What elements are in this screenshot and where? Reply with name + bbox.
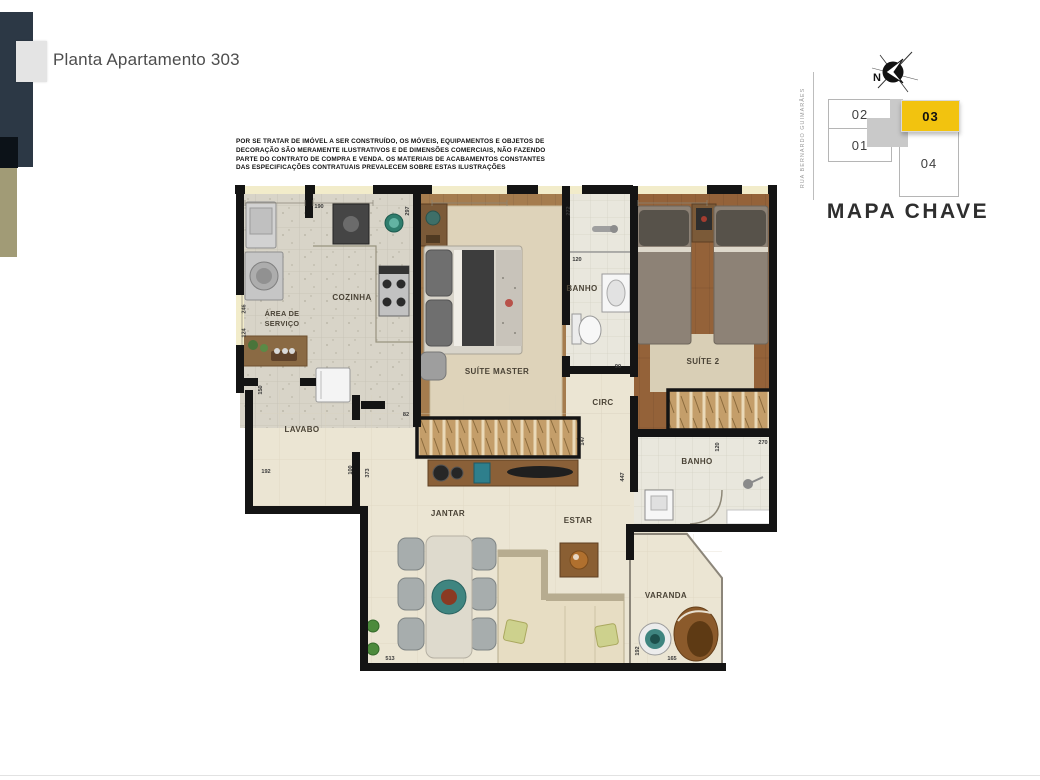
room-label-estar: ESTAR <box>564 516 593 525</box>
disclaimer-line: POR SE TRATAR DE IMÓVEL A SER CONSTRUÍDO… <box>236 138 548 147</box>
dim-272: 272 <box>566 206 572 215</box>
dim-124: 124 <box>242 327 248 337</box>
deco-bar-olive <box>0 168 17 257</box>
blank-label-box <box>727 510 771 524</box>
key-map: RUA BERNARDO GUIMARÃES N 02 01 03 04 MAP… <box>795 40 1040 235</box>
room-label-area-servico: ÁREA DE <box>265 309 300 318</box>
room-label-banho1: BANHO <box>566 284 597 293</box>
title-bullet-square <box>16 41 47 82</box>
dim-82: 82 <box>403 412 409 418</box>
room-label-lavabo: LAVABO <box>285 425 320 434</box>
suite2-closet <box>668 390 771 430</box>
compass-icon: N <box>870 48 920 103</box>
keymap-unit-03-highlighted: 03 <box>901 100 960 132</box>
dim-373: 373 <box>365 468 371 477</box>
double-bed <box>424 246 522 354</box>
dim-100: 100 <box>348 465 354 474</box>
dim-90: 90 <box>615 364 621 370</box>
room-label-circ: CIRC <box>592 398 613 407</box>
room-label-suite-master: SUÍTE MASTER <box>465 367 529 376</box>
sideboard <box>428 460 578 486</box>
dim-513: 513 <box>385 656 394 662</box>
armchair <box>420 352 446 380</box>
room-label-cozinha: COZINHA <box>332 293 371 302</box>
bath1-toilet <box>579 316 601 344</box>
floor-plan: ÁREA DE SERVIÇO COZINHA SUÍTE MASTER BAN… <box>233 183 793 683</box>
single-bed-right <box>714 206 768 344</box>
page-title: Planta Apartamento 303 <box>53 50 240 70</box>
dim-192-varanda: 192 <box>635 646 641 655</box>
keymap-title: MAPA CHAVE <box>823 200 993 224</box>
dim-297: 297 <box>405 206 411 215</box>
dim-120-banho2: 120 <box>715 442 721 451</box>
room-label-varanda: VARANDA <box>645 591 687 600</box>
dim-270: 270 <box>758 440 767 446</box>
room-label-suite2: SUÍTE 2 <box>686 357 719 366</box>
room-label-banho2: BANHO <box>681 457 712 466</box>
room-label-area-servico-2: SERVIÇO <box>265 319 300 328</box>
dim-447: 447 <box>620 472 626 481</box>
disclaimer-text: POR SE TRATAR DE IMÓVEL A SER CONSTRUÍDO… <box>236 138 548 173</box>
dim-246: 246 <box>242 304 248 313</box>
deco-bar-black <box>0 137 18 168</box>
dim-192-lavabo: 192 <box>261 469 270 475</box>
street-line <box>813 72 814 200</box>
tv <box>507 466 573 478</box>
single-bed-left <box>637 206 691 344</box>
dim-165: 165 <box>667 656 676 662</box>
room-label-jantar: JANTAR <box>431 509 465 518</box>
keymap-unit-04: 04 <box>899 130 959 197</box>
dim-190: 190 <box>314 204 323 210</box>
suite-master-closet <box>417 418 579 457</box>
disclaimer-line: DAS ESPECIFICAÇÕES CONTRATUAIS PREVALECE… <box>236 164 548 173</box>
dim-120-banho1: 120 <box>572 257 581 263</box>
disclaimer-line: DECORAÇÃO SÃO MERAMENTE ILUSTRATIVOS E D… <box>236 147 548 156</box>
dim-150: 150 <box>258 385 264 394</box>
dim-147: 147 <box>580 436 586 445</box>
north-label: N <box>873 72 881 84</box>
street-label: RUA BERNARDO GUIMARÃES <box>800 68 806 208</box>
footer-divider <box>0 775 1040 776</box>
